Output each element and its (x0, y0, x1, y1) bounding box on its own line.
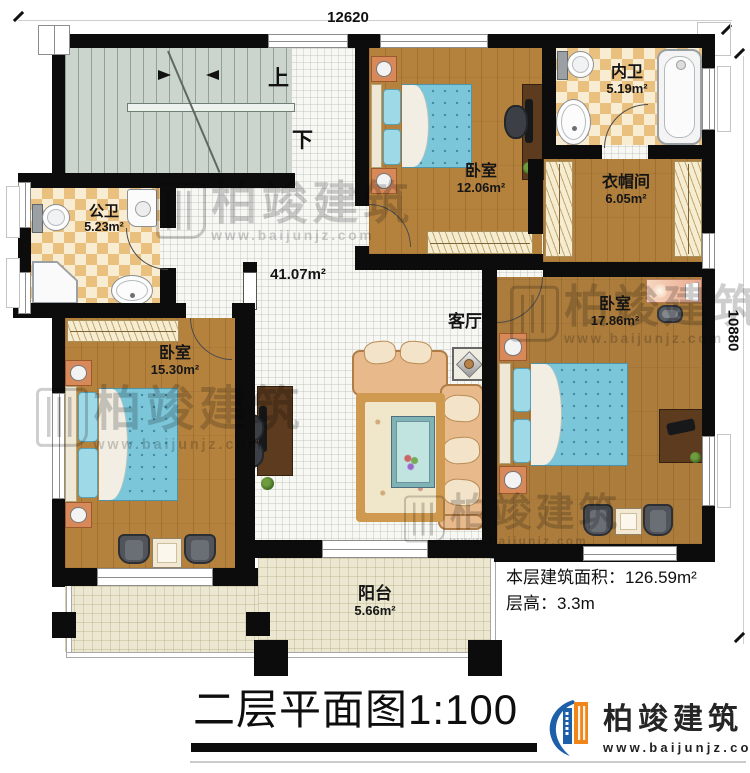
dimension-top-value: 12620 (318, 9, 378, 26)
pillow (78, 392, 98, 442)
floor-area-info: 本层建筑面积：126.59m² (506, 563, 697, 588)
brand-website: www.baijunjz.com (603, 740, 750, 755)
window (38, 25, 70, 55)
dimension-right-value: 10880 (725, 303, 742, 359)
living-room-label: 客厅 (440, 312, 490, 332)
window-sill (6, 258, 20, 308)
tea-table (615, 508, 642, 535)
room-label-inner-bath: 内卫 5.19m² (594, 64, 660, 97)
room-label-balcony: 阳台 5.66m² (340, 584, 410, 618)
coffee-table (391, 416, 435, 488)
sofa-cushion (442, 477, 481, 507)
bed-headboard (371, 84, 382, 168)
wall-segment (542, 48, 556, 145)
sliding-door (322, 540, 428, 558)
column (468, 640, 502, 676)
office-chair (504, 105, 528, 139)
brand-logo: 柏竣建筑 www.baijunjz.com (543, 696, 750, 763)
floor-height-label: 层高： (506, 594, 557, 613)
column (254, 640, 288, 676)
floor-area-label: 本层建筑面积： (506, 568, 625, 587)
wall-segment (235, 318, 255, 570)
sofa-cushion (442, 394, 481, 424)
window (583, 546, 677, 561)
brand-text: 柏竣建筑 www.baijunjz.com (603, 705, 750, 755)
window-sill (6, 186, 20, 238)
wall-segment (482, 262, 497, 550)
room-label-bedroom-top: 卧室 12.06m² (444, 163, 518, 196)
nightstand (499, 466, 527, 494)
pillow (383, 129, 401, 165)
wall-segment (355, 254, 543, 270)
chair (583, 504, 613, 536)
brand-name: 柏竣建筑 (603, 705, 750, 735)
nightstand (65, 360, 92, 386)
wall-segment (52, 34, 65, 176)
plant-icon (261, 477, 274, 490)
sofa-cushion (399, 340, 433, 366)
tea-table (152, 538, 182, 568)
wall-segment (18, 173, 295, 188)
wall-segment (355, 48, 369, 206)
window (380, 34, 488, 48)
pillow (78, 448, 98, 498)
window (702, 68, 715, 130)
stair-up-label: 上 (268, 62, 289, 92)
chair (118, 534, 150, 564)
wall-segment (428, 540, 494, 558)
floor-height-info: 层高：3.3m (506, 589, 595, 614)
stair-handrail (127, 103, 295, 112)
shower-icon (32, 261, 78, 304)
nightstand (371, 56, 397, 82)
title-underline-bold (191, 743, 537, 752)
wardrobe (545, 161, 573, 257)
room-label-public-bath: 公卫 5.23m² (74, 203, 134, 235)
wardrobe (674, 161, 702, 257)
wall-segment (255, 540, 322, 558)
toilet-icon (42, 204, 70, 231)
room-label-cloakroom: 衣帽间 6.05m² (588, 174, 664, 207)
wall-segment (542, 145, 602, 159)
chair (184, 534, 216, 564)
window (97, 568, 213, 586)
pillow (513, 368, 531, 412)
floor-area-value: 126.59m² (625, 568, 697, 587)
nightstand (371, 168, 397, 194)
sink-icon (111, 275, 153, 306)
nightstand (499, 333, 527, 361)
window (702, 233, 715, 269)
wall-segment (232, 303, 255, 318)
column (246, 612, 270, 636)
room-label-bedroom-right: 卧室 17.86m² (570, 296, 660, 329)
closet (427, 231, 533, 254)
window-sill (717, 434, 731, 508)
wall-segment (160, 268, 176, 303)
wall-segment (13, 303, 186, 318)
wall-segment (243, 262, 257, 272)
stool (657, 305, 683, 323)
dimension-line-right (743, 56, 744, 644)
wall-segment (528, 159, 543, 234)
toilet-icon (567, 51, 594, 78)
bed-headboard (499, 363, 511, 464)
page-title-scale: 1:100 (408, 686, 518, 733)
room-label-bedroom-left: 卧室 15.30m² (138, 345, 212, 378)
hall-area-label: 41.07m² (262, 266, 334, 283)
window (52, 393, 65, 499)
sink-icon (556, 99, 591, 145)
wall-segment (543, 262, 715, 277)
column (52, 612, 76, 638)
pillow (513, 419, 531, 463)
stair-down-label: 下 (292, 124, 313, 154)
page-title-text: 二层平面图 (193, 686, 408, 733)
sofa-cushion (442, 436, 481, 466)
closet (67, 320, 179, 342)
wall-segment (160, 188, 176, 228)
floor-height-value: 3.3m (557, 594, 595, 613)
window (268, 34, 348, 48)
pillow (383, 89, 401, 125)
bed-headboard (65, 386, 77, 502)
plant-icon (690, 452, 701, 463)
floor-plan-canvas: 12620 10880 上 下 (0, 0, 750, 773)
window (702, 436, 715, 506)
balcony-floor (65, 586, 258, 652)
nightstand (65, 502, 92, 528)
stair-direction-arrow (158, 70, 171, 80)
window-sill (717, 66, 731, 132)
page-title: 二层平面图1:100 (193, 676, 518, 737)
bathtub-icon (657, 49, 702, 145)
chair (643, 504, 673, 536)
side-table (452, 347, 486, 381)
brand-logo-icon (543, 696, 595, 763)
stair-direction-arrow (206, 70, 219, 80)
